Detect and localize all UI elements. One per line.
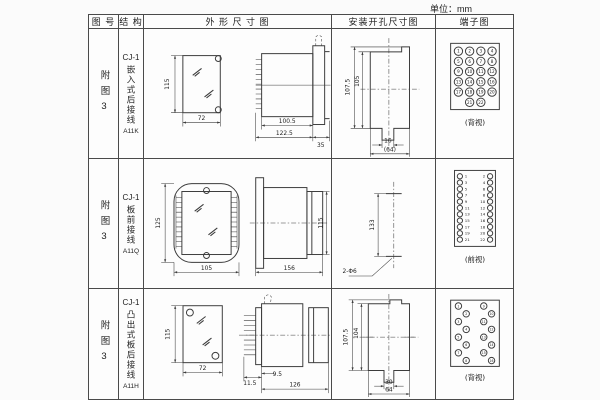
svg-text:15: 15: [478, 79, 484, 84]
code-label: A11H: [123, 383, 139, 390]
svg-text:7: 7: [457, 351, 459, 355]
svg-text:11: 11: [478, 69, 484, 74]
svg-text:8: 8: [483, 192, 486, 197]
svg-text:1: 1: [465, 173, 468, 178]
svg-text:1: 1: [457, 48, 460, 53]
svg-text:18: 18: [480, 224, 485, 229]
figure-no: 附图3: [97, 320, 111, 368]
svg-text:18: 18: [467, 89, 473, 94]
svg-text:12: 12: [490, 328, 494, 332]
svg-text:1: 1: [457, 304, 459, 308]
front-view: 125 105: [156, 183, 239, 276]
svg-text:10: 10: [490, 312, 494, 316]
model-label: CJ-1: [123, 193, 140, 202]
terminal-view-label: (背视): [465, 118, 485, 127]
svg-text:17: 17: [465, 224, 470, 229]
svg-text:22: 22: [478, 99, 484, 104]
dim-width: 72: [198, 366, 206, 372]
svg-text:13: 13: [465, 211, 470, 216]
outline-cell: 115 72 11.5 9.5: [144, 289, 332, 399]
svg-text:6: 6: [483, 186, 486, 191]
dim-flange-depth: 35: [316, 143, 324, 149]
side-view: 11.5 9.5 126: [238, 295, 329, 393]
svg-text:9: 9: [465, 199, 468, 204]
terminal-cell: 12345678910111213141516171819202122 (背视): [436, 29, 513, 159]
model-label: CJ-1: [123, 298, 140, 307]
svg-text:11: 11: [482, 320, 486, 324]
svg-text:6: 6: [468, 58, 471, 63]
svg-text:2: 2: [468, 48, 471, 53]
svg-text:13: 13: [456, 79, 462, 84]
svg-text:6: 6: [465, 343, 467, 347]
side-view: 156 115: [249, 177, 329, 275]
col-header-structure: 结 构: [119, 15, 144, 29]
svg-text:9: 9: [457, 69, 460, 74]
svg-text:17: 17: [456, 89, 462, 94]
svg-text:3: 3: [465, 180, 468, 185]
svg-text:20: 20: [480, 230, 485, 235]
terminal-cell: 12345678910111213141516171819202122 (前视): [436, 159, 513, 289]
mounting-label: 嵌入式后接线: [125, 65, 137, 125]
svg-text:16: 16: [480, 218, 485, 223]
outline-cell: 115 72 100.5 122.5 35: [144, 29, 332, 159]
svg-text:10: 10: [467, 69, 473, 74]
svg-text:15: 15: [482, 351, 486, 355]
mounting-label: 板前接线: [125, 205, 137, 245]
model-label: CJ-1: [123, 53, 140, 62]
terminal-view-label: (前视): [465, 254, 485, 263]
svg-text:21: 21: [465, 237, 470, 242]
outline-drawing-a11h: 115 72 11.5 9.5: [145, 290, 331, 398]
svg-text:4: 4: [483, 180, 486, 185]
svg-text:20: 20: [489, 89, 495, 94]
svg-text:4: 4: [491, 48, 494, 53]
svg-text:9: 9: [483, 304, 485, 308]
code-label: A11Q: [123, 248, 139, 255]
structure-cell: CJ-1 嵌入式后接线 A11K: [119, 29, 144, 159]
terminal-drawing-a11q: 12345678910111213141516171819202122 (前视): [437, 160, 512, 288]
figure-no-cell: 附图3: [89, 29, 119, 159]
dim-height: 125: [156, 217, 162, 228]
svg-text:19: 19: [478, 89, 484, 94]
svg-text:10: 10: [480, 199, 485, 204]
dim-inner-height: 104: [354, 327, 360, 338]
svg-text:7: 7: [480, 58, 483, 63]
figure-no-cell: 附图3: [89, 159, 119, 289]
dim-overall-width: (64): [383, 147, 395, 153]
dim-hole-pitch: 133: [370, 219, 376, 230]
install-drawing-a11q: 133 2-Φ6: [333, 160, 435, 288]
svg-text:5: 5: [465, 186, 468, 191]
outline-drawing-a11k: 115 72 100.5 122.5 35: [145, 30, 331, 158]
col-header-install: 安装开孔尺寸图: [332, 15, 436, 29]
figure-no: 附图3: [97, 70, 111, 118]
figure-no-cell: 附图3: [89, 289, 119, 399]
dim-height: 115: [165, 328, 171, 339]
code-label: A11K: [123, 128, 138, 135]
svg-text:14: 14: [490, 343, 494, 347]
install-drawing-a11k: 107.5 105 16 (64): [333, 30, 435, 158]
dim-overall-depth: 126: [289, 383, 300, 389]
svg-text:5: 5: [457, 58, 460, 63]
svg-text:12: 12: [480, 205, 485, 210]
col-header-figure-no: 图 号: [89, 15, 119, 29]
col-header-outline: 外 形 尺 寸 图: [144, 15, 332, 29]
svg-text:14: 14: [480, 211, 485, 216]
svg-text:2: 2: [483, 173, 486, 178]
front-view: 115 72: [165, 55, 221, 126]
mounting-label: 凸出式板后接线: [125, 310, 137, 380]
terminal-cell: 19210311412513614715816 (背视): [436, 289, 513, 399]
dim-width: 105: [200, 265, 211, 271]
svg-text:22: 22: [480, 237, 485, 242]
terminal-drawing-a11k: 12345678910111213141516171819202122 (背视): [437, 30, 512, 158]
dim-depth: 156: [283, 265, 294, 271]
terminal-drawing-a11h: 19210311412513614715816 (背视): [437, 290, 512, 398]
dim-overall-depth: 122.5: [275, 130, 292, 136]
dim-holes: 2-Φ6: [342, 269, 356, 275]
svg-text:14: 14: [467, 79, 473, 84]
dimension-table: 图 号 结 构 外 形 尺 寸 图 安装开孔尺寸图 端子图 附图3 CJ-1 嵌…: [88, 14, 514, 400]
svg-text:19: 19: [465, 230, 470, 235]
svg-text:12: 12: [489, 69, 495, 74]
outline-cell: 125 105 156 115: [144, 159, 332, 289]
front-view: 115 72: [165, 306, 222, 377]
svg-text:15: 15: [465, 218, 470, 223]
svg-text:11: 11: [465, 205, 470, 210]
svg-text:21: 21: [467, 99, 473, 104]
dim-slot-width: 16: [384, 138, 392, 144]
svg-text:7: 7: [465, 192, 468, 197]
install-drawing-a11h: 107.5 104 30 64: [333, 290, 435, 398]
svg-text:2: 2: [465, 312, 467, 316]
document-page: 单位：mm 图 号 结 构 外 形 尺 寸 图 安装开孔尺寸图 端子图 附图3 …: [0, 0, 600, 400]
dim-outer-height: 107.5: [343, 328, 349, 345]
dim-outer-height: 107.5: [345, 78, 351, 95]
dim-pin-depth: 11.5: [243, 381, 256, 387]
install-cell: 107.5 105 16 (64): [332, 29, 436, 159]
terminal-grid: 12345678910111213141516171819202122: [454, 46, 496, 106]
install-cell: 133 2-Φ6: [332, 159, 436, 289]
dim-width: 72: [197, 116, 205, 122]
terminal-grid: 19210311412513614715816: [455, 303, 495, 364]
svg-text:8: 8: [491, 58, 494, 63]
svg-text:16: 16: [490, 359, 494, 363]
col-header-terminal: 端子图: [436, 15, 513, 29]
dim-panel-offset: 9.5: [272, 372, 282, 378]
figure-no: 附图3: [97, 200, 111, 248]
dim-overall-width: 64: [385, 388, 393, 394]
dim-body-depth: 100.5: [278, 119, 295, 125]
dim-case-height: 115: [318, 217, 324, 228]
svg-text:3: 3: [480, 48, 483, 53]
structure-cell: CJ-1 板前接线 A11Q: [119, 159, 144, 289]
svg-text:16: 16: [489, 79, 495, 84]
svg-text:5: 5: [457, 335, 459, 339]
dim-slot-width: 30: [385, 380, 393, 386]
dim-inner-height: 105: [354, 75, 360, 86]
terminal-view-label: (背视): [465, 373, 485, 382]
svg-text:3: 3: [457, 320, 459, 324]
svg-text:8: 8: [465, 359, 467, 363]
svg-text:4: 4: [465, 328, 467, 332]
svg-text:13: 13: [482, 335, 486, 339]
dim-height: 115: [165, 78, 171, 89]
side-view: 100.5 122.5 35: [255, 35, 330, 149]
structure-cell: CJ-1 凸出式板后接线 A11H: [119, 289, 144, 399]
outline-drawing-a11q: 125 105 156 115: [145, 160, 331, 288]
install-cell: 107.5 104 30 64: [332, 289, 436, 399]
terminal-grid: 12345678910111213141516171819202122: [457, 173, 492, 242]
